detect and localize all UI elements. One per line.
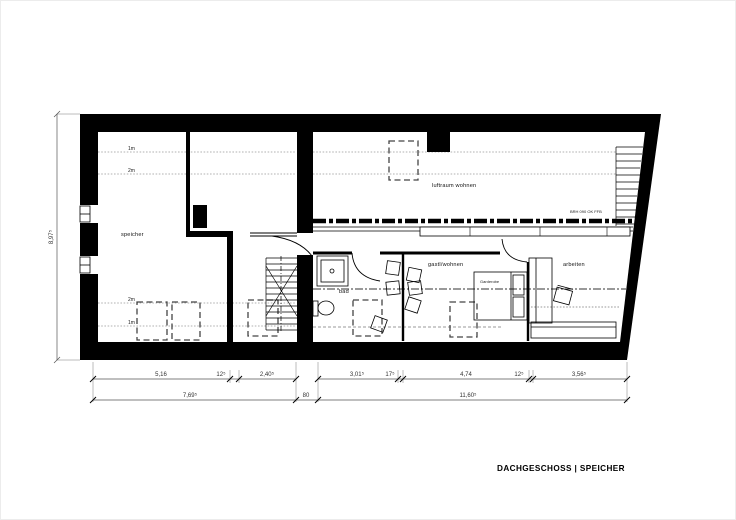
wall-stub [427,132,450,152]
height-line-label-top-1m: 1m [128,146,135,152]
room-label-gast-wohnen: gastl/wohnen [428,262,463,268]
dim-label-gap: 80 [303,393,310,399]
dim-label-4: 3,01⁵ [350,371,365,378]
dim-label-total-right: 11,60⁵ [459,392,477,399]
room-label-luftraum-wohnen: luftraum wohnen [432,183,476,189]
height-line-label-bottom-2m: 2m [128,297,135,303]
dim-label-6: 4,74 [460,372,472,378]
room-label-arbeiten: arbeiten [563,262,585,268]
sideboard [420,227,630,236]
dim-label-8: 3,56⁵ [572,371,587,378]
railing-height-note: BRH 090 OK FFB [570,209,602,214]
drawing-title: DACHGESCHOSS | SPEICHER [497,464,625,473]
chimney [193,205,207,228]
height-line-label-top-2m: 2m [128,168,135,174]
dim-label-total-left: 7,69⁵ [183,392,198,399]
height-line-label-bottom-1m: 1m [128,320,135,326]
dim-label-1: 5,16 [155,372,167,378]
dim-label-5: 17⁵ [385,371,395,378]
dim-label-vertical: 8,97⁵ [48,229,55,244]
wardrobe-label: Garderobe [480,279,500,284]
room-label-bad: bad [339,289,349,295]
room-label-speicher: speicher [121,232,144,238]
dim-label-2: 12⁵ [216,371,226,378]
dim-label-7: 12⁵ [514,371,524,378]
floorplan-drawing: 1m 2m 2m 1m [0,0,736,520]
floorplan-sheet: 1m 2m 2m 1m [0,0,736,520]
dim-label-3: 2,40⁵ [260,371,275,378]
